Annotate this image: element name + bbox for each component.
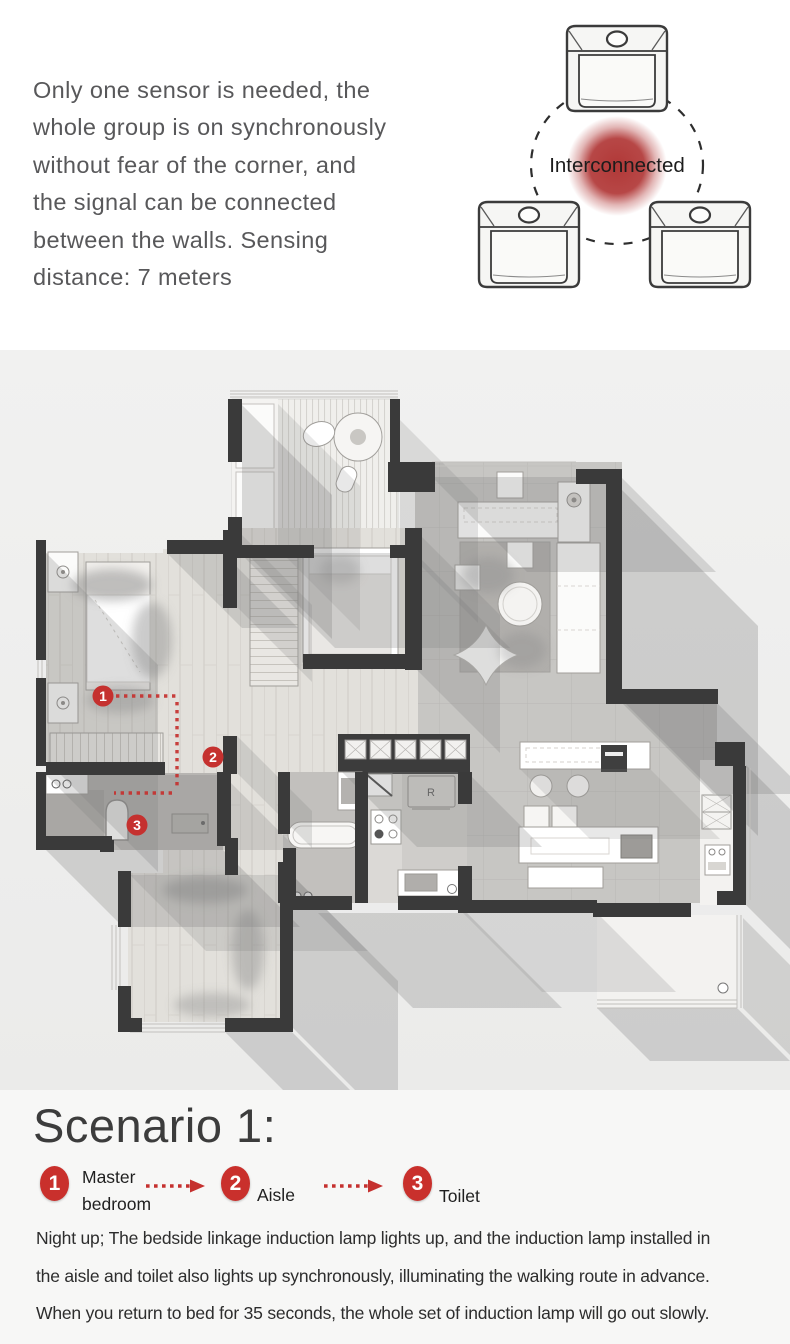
description-line: When you return to bed for 35 seconds, t… (36, 1295, 710, 1333)
intro-line: distance: 7 meters (33, 259, 386, 296)
legend-badge-number: 3 (412, 1172, 424, 1196)
intro-line: without fear of the corner, and (33, 147, 386, 184)
floorplan-section: R 1 2 3 (0, 350, 790, 1090)
legend-badge-number: 1 (49, 1172, 61, 1196)
marker-2: 2 (203, 747, 224, 768)
svg-text:1: 1 (99, 688, 107, 704)
svg-text:3: 3 (133, 817, 141, 833)
interconnect-label: Interconnected (549, 154, 685, 177)
legend-badge-1: 1 (40, 1166, 69, 1201)
legend-badge-number: 2 (230, 1172, 242, 1196)
scenario-description: Night up; The bedside linkage induction … (36, 1220, 710, 1333)
motion-sensor-icon (650, 202, 750, 287)
interconnect-illustration: Interconnected (470, 8, 782, 314)
intro-paragraph: Only one sensor is needed, the whole gro… (33, 72, 386, 296)
intro-line: between the walls. Sensing (33, 222, 386, 259)
intro-section: Only one sensor is needed, the whole gro… (0, 0, 790, 350)
fridge-label: R (427, 787, 435, 799)
scenario-title: Scenario 1: (33, 1098, 276, 1153)
legend-badge-3: 3 (403, 1166, 432, 1201)
intro-line: Only one sensor is needed, the (33, 72, 386, 109)
description-line: Night up; The bedside linkage induction … (36, 1220, 710, 1258)
marker-3: 3 (127, 815, 148, 836)
motion-sensor-icon (567, 26, 667, 111)
svg-text:2: 2 (209, 749, 217, 765)
dotted-arrow-icon (144, 1178, 206, 1194)
description-line: the aisle and toilet also lights up sync… (36, 1258, 710, 1296)
legend-badge-2: 2 (221, 1166, 250, 1201)
intro-line: the signal can be connected (33, 184, 386, 221)
legend-label-aisle: Aisle (257, 1182, 295, 1209)
scenario-section: Scenario 1: 1 Master bedroom 2 Aisle 3 T… (0, 1090, 790, 1344)
product-page: Only one sensor is needed, the whole gro… (0, 0, 790, 1344)
marker-1: 1 (93, 686, 114, 707)
legend-label-toilet: Toilet (439, 1183, 480, 1210)
dotted-arrow-icon (322, 1178, 384, 1194)
motion-sensor-icon (479, 202, 579, 287)
intro-line: whole group is on synchronously (33, 109, 386, 146)
